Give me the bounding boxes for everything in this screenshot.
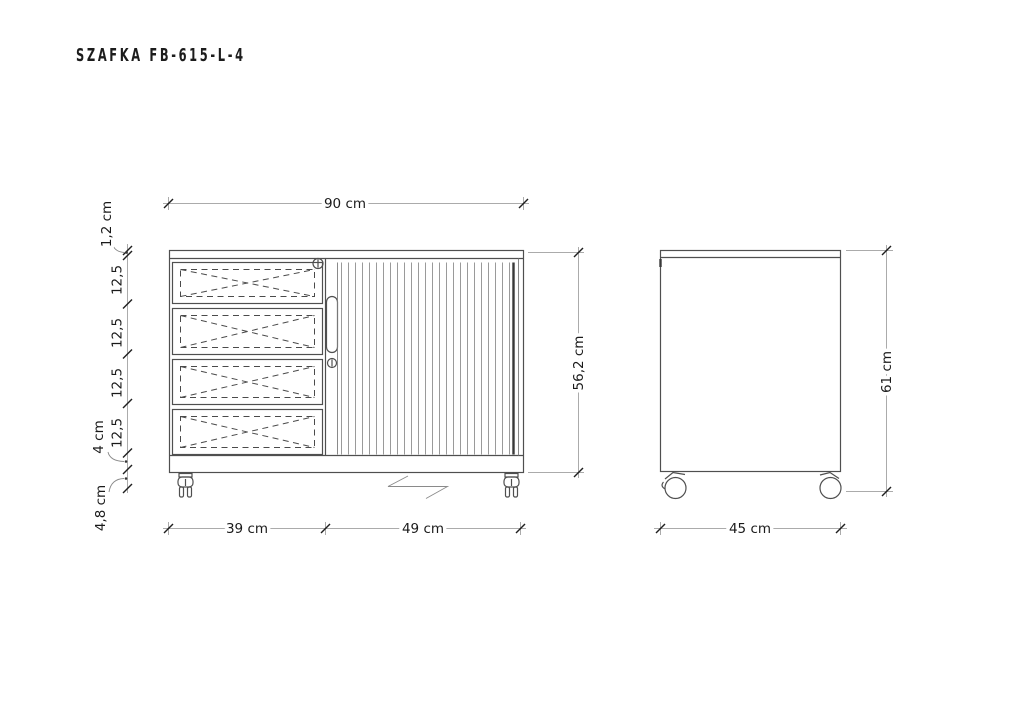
dim-total-height: 61 cm: [846, 245, 895, 497]
dim-label-total-height: 61 cm: [879, 351, 895, 393]
dim-bottom-widths: 39 cm 49 cm: [163, 521, 526, 537]
door-slats: [341, 263, 510, 455]
dim-label-body-height: 56,2 cm: [571, 336, 587, 391]
dim-label-plinth: 4 cm: [91, 420, 107, 453]
caster-front-left: [178, 474, 193, 498]
dim-label-drawer-4: 12,5: [110, 418, 126, 448]
dim-label-drawer-1: 12,5: [110, 265, 126, 295]
dim-label-top-panel: 1,2 cm: [99, 201, 115, 247]
door-direction-symbol: [388, 476, 448, 499]
dim-body-height: 56,2 cm: [528, 247, 587, 478]
side-view: [661, 251, 842, 499]
dim-height-chain: 1,2 cm 12,5 12,5 12,5 12,5 4 cm 4,8 cm: [91, 201, 132, 531]
dim-label-caster-height: 4,8 cm: [93, 485, 109, 531]
dim-label-drawer-2: 12,5: [110, 318, 126, 348]
dim-label-90cm: 90 cm: [324, 196, 366, 212]
technical-drawing: 90 cm 1,2 cm 12,5 1: [0, 0, 1024, 724]
caster-side-right: [820, 473, 841, 499]
side-outline: [661, 251, 841, 472]
dim-overall-width: 90 cm: [163, 196, 529, 212]
drawing-sheet: SZAFKA FB-615-L-4: [0, 0, 1024, 724]
dim-label-depth: 45 cm: [729, 521, 771, 537]
dim-label-door-width: 49 cm: [402, 521, 444, 537]
caster-front-right: [504, 474, 519, 498]
caster-side-left: [662, 473, 686, 499]
dim-label-drawers-width: 39 cm: [226, 521, 268, 537]
tambour-door: [338, 259, 519, 456]
dim-depth: 45 cm: [654, 521, 847, 537]
front-view: [170, 251, 524, 499]
dim-label-drawer-3: 12,5: [110, 368, 126, 398]
door-handle: [327, 297, 338, 353]
